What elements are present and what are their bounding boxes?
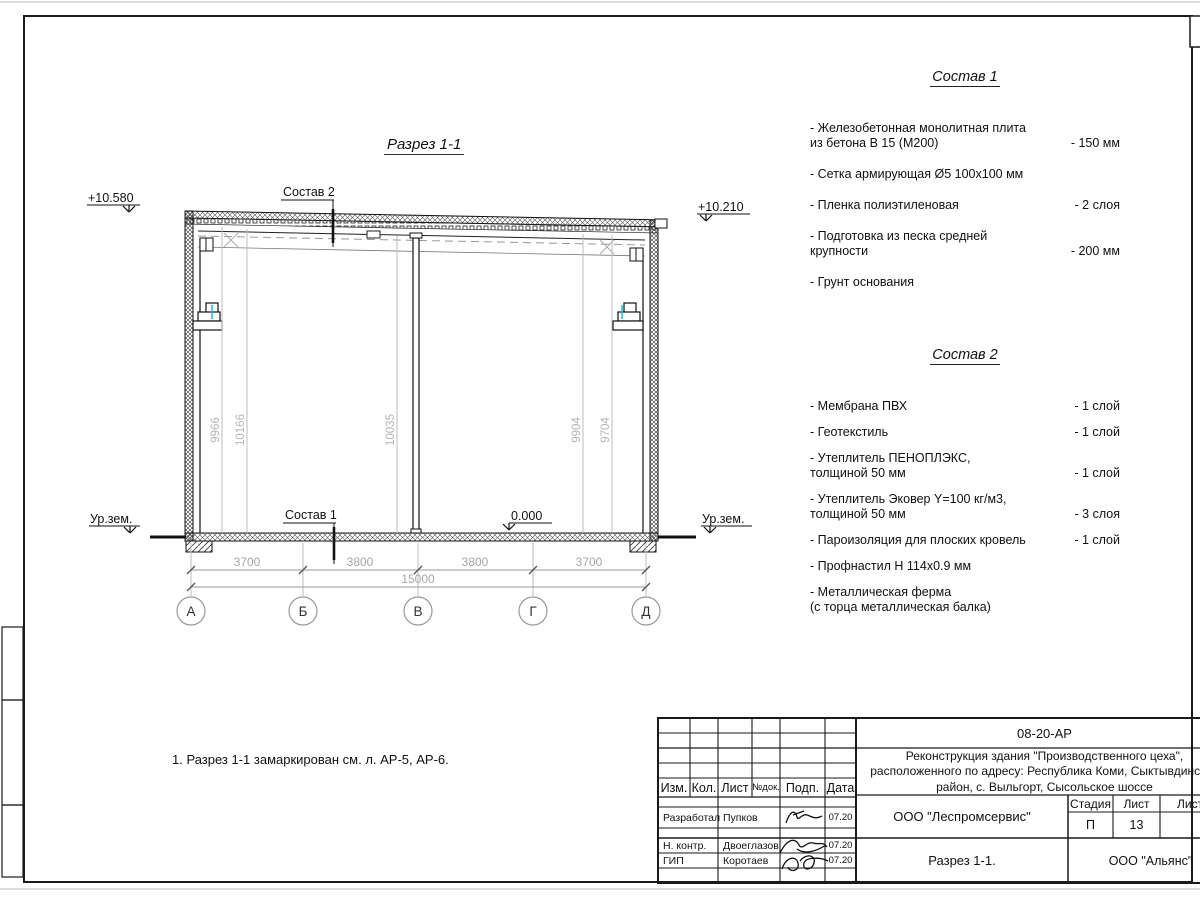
span-dim-2: 3800	[347, 555, 374, 569]
tb-role-gip: ГИП	[660, 853, 719, 868]
horizontal-dimensions: 3700 3800 3800 3700 15000	[187, 543, 650, 596]
sostav2-title: Состав 2	[930, 348, 999, 365]
sostav1-list: Состав 1 - Железобетонная монолитная пли…	[810, 70, 1120, 306]
tb-name-korotaev: Коротаев	[720, 853, 782, 868]
tb-date-1: 07.20	[825, 807, 856, 828]
list-item: - Утеплитель ПЕНОПЛЭКС, толщиной 50 мм- …	[810, 451, 1120, 481]
tb-stage-value: П	[1068, 812, 1113, 838]
axis-b: Б	[299, 604, 308, 619]
vertical-dim-labels: 9966 10166 10035 9904 9704	[210, 414, 612, 446]
total-dim: 15000	[401, 572, 435, 586]
span-dim-3: 3800	[462, 555, 489, 569]
building-section	[150, 211, 696, 552]
axis-g: Г	[529, 604, 537, 619]
dim-10035: 10035	[385, 414, 397, 446]
axis-v: В	[413, 604, 422, 619]
list-item: - Подготовка из песка средней крупности-…	[810, 229, 1120, 259]
tb-name-pupkov: Пупков	[720, 807, 781, 828]
axis-a: А	[186, 604, 195, 619]
tb-project: Реконструкция здания "Производственного …	[858, 748, 1200, 796]
list-item: - Профнастил Н 114х0.9 мм	[810, 559, 1120, 574]
signature-razrabotal	[783, 806, 825, 828]
tb-role-nkontr: Н. контр.	[660, 838, 719, 853]
elevation-zero: 0.000	[511, 509, 542, 523]
axis-bubbles: А Б В Г Д	[177, 597, 660, 625]
tb-col-ndok: №док.	[752, 778, 780, 797]
dim-10166: 10166	[235, 414, 247, 446]
elevation-top-left: +10.580	[88, 191, 134, 205]
drawing-title: Разрез 1-1	[384, 136, 464, 155]
dim-9904: 9904	[571, 417, 583, 443]
tb-name-dvoeglazov: Двоеглазов	[720, 838, 782, 853]
tb-role-razrabotal: Разработал	[660, 807, 719, 828]
ground-level-right: Ур.зем.	[702, 512, 744, 526]
span-dim-4: 3700	[576, 555, 603, 569]
right-wall	[650, 220, 658, 541]
sostav2-list: Состав 2 - Мембрана ПВХ- 1 слой - Геотек…	[810, 348, 1120, 626]
list-item: - Утеплитель Эковер Y=100 кг/м3, толщино…	[810, 492, 1120, 522]
tb-org: ООО "Леспромсервис"	[856, 795, 1068, 838]
drawing-sheet: 9966 10166 10035 9904 9704 3700 3800 380…	[0, 0, 1200, 900]
tb-col-izm: Изм.	[658, 778, 690, 797]
left-wall	[185, 211, 193, 541]
tb-col-data: Дата	[825, 778, 856, 797]
right-bracket	[613, 303, 643, 330]
tb-sheet-title: Разрез 1-1.	[856, 838, 1068, 883]
ground-level-left: Ур.зем.	[90, 512, 132, 526]
list-item: - Сетка армирующая Ø5 100х100 мм	[810, 167, 1120, 182]
axis-d: Д	[641, 604, 650, 619]
tb-doc-code: 08-20-АР	[856, 718, 1200, 748]
list-item: - Металлическая ферма (с торца металличе…	[810, 585, 1120, 615]
note-text: 1. Разрез 1-1 замаркирован см. л. АР-5, …	[172, 752, 512, 767]
tb-sheet-number: 13	[1113, 812, 1160, 838]
middle-column	[413, 238, 419, 533]
list-item: - Пароизоляция для плоских кровель- 1 сл…	[810, 533, 1120, 548]
span-dim-1: 3700	[234, 555, 261, 569]
floor-slab	[185, 533, 658, 541]
tb-stage-label: Стадия	[1068, 795, 1113, 812]
tb-sheet-label: Лист	[1113, 795, 1160, 812]
list-item: - Мембрана ПВХ- 1 слой	[810, 399, 1120, 414]
sostav1-title: Состав 1	[930, 70, 999, 87]
list-item: - Железобетонная монолитная плита из бет…	[810, 121, 1120, 151]
dim-9966: 9966	[210, 417, 222, 443]
tb-col-kol: Кол.	[690, 778, 718, 797]
signature-gip	[776, 849, 834, 877]
tb-sheets-label: Листов	[1160, 795, 1200, 812]
leader-sostav1-label: Состав 1	[285, 508, 337, 522]
list-item: - Грунт основания	[810, 275, 1120, 290]
dim-9704: 9704	[600, 417, 612, 443]
tb-col-list: Лист	[718, 778, 752, 797]
list-item: - Пленка полиэтиленовая- 2 слоя	[810, 198, 1120, 213]
tb-contractor: ООО "Альянс"	[1068, 838, 1200, 883]
leader-sostav2-label: Состав 2	[283, 185, 335, 199]
tb-col-podp: Подп.	[780, 778, 825, 797]
left-bracket	[193, 303, 222, 330]
elevation-top-right: +10.210	[698, 200, 744, 214]
list-item: - Геотекстиль- 1 слой	[810, 425, 1120, 440]
